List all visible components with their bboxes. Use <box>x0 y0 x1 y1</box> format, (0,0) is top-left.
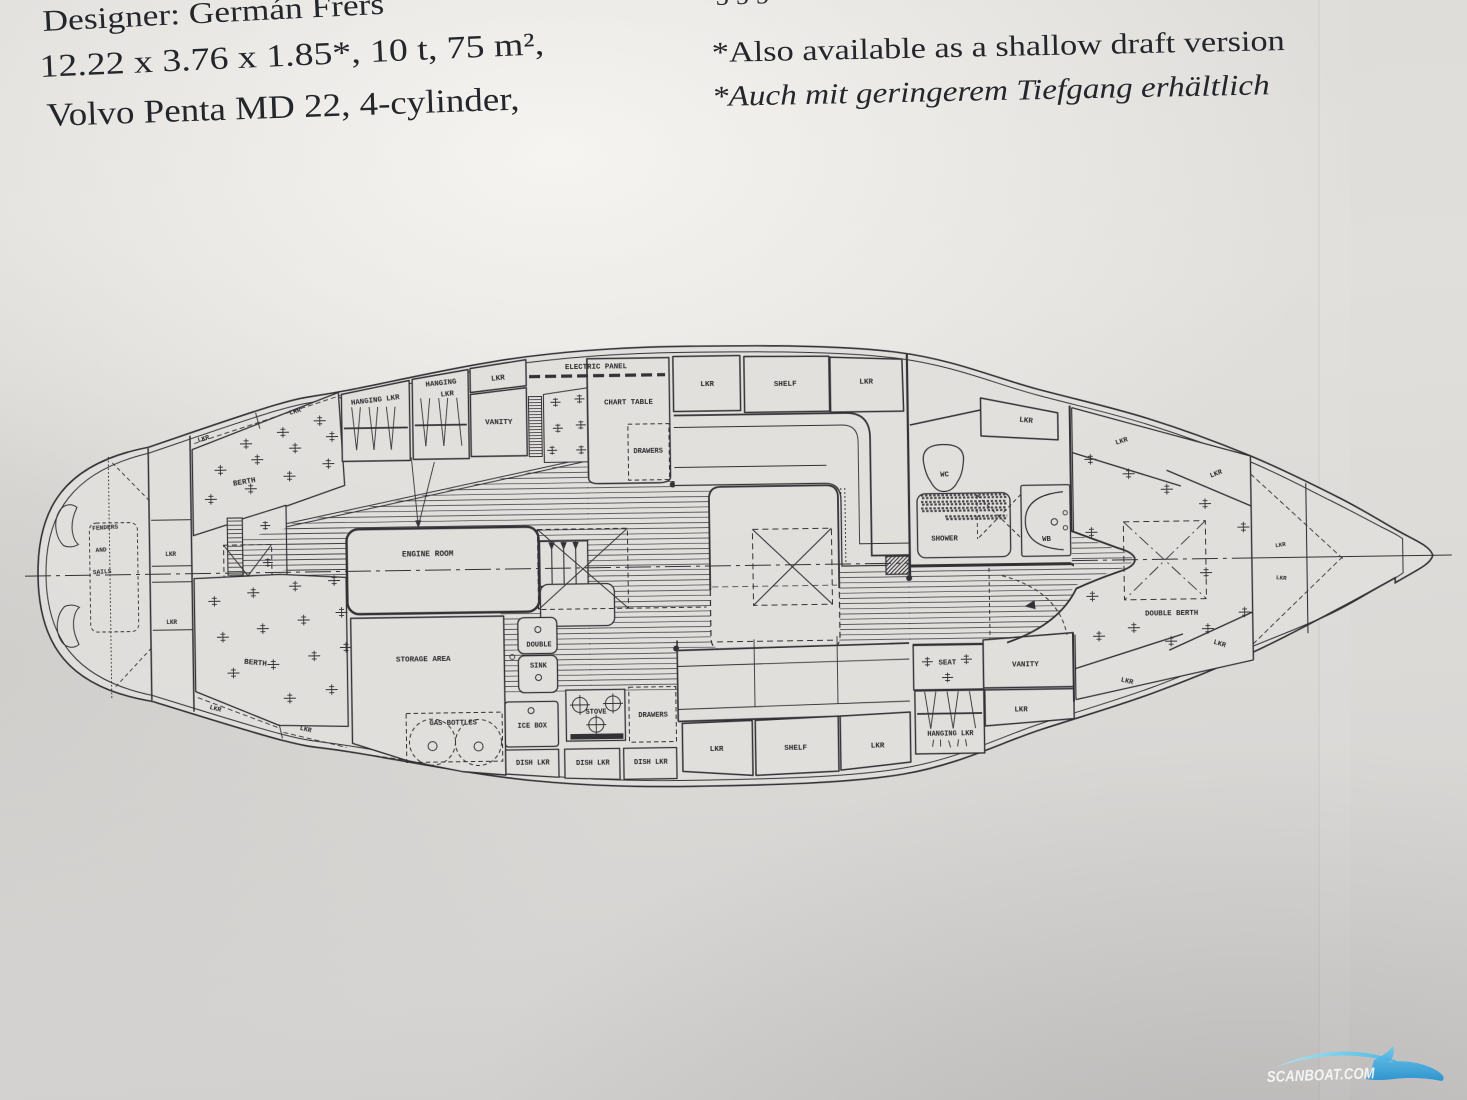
svg-text:VANITY: VANITY <box>1012 661 1039 669</box>
svg-text:LKR: LKR <box>710 746 724 754</box>
svg-text:SHELF: SHELF <box>774 381 797 389</box>
svg-text:355: 355 <box>715 0 776 11</box>
svg-text:Designer: Germán Frers: Designer: Germán Frers <box>42 0 385 38</box>
svg-text:LKR: LKR <box>1014 706 1028 714</box>
svg-text:LKR: LKR <box>859 379 873 387</box>
svg-text:ICE BOX: ICE BOX <box>518 722 548 730</box>
svg-text:STORAGE AREA: STORAGE AREA <box>396 656 451 665</box>
svg-text:AND: AND <box>95 546 107 554</box>
svg-text:*Auch mit geringerem Tiefgang: *Auch mit geringerem Tiefgang erhältlich <box>711 69 1270 113</box>
svg-text:LKR: LKR <box>1019 417 1034 426</box>
svg-text:*Also available as a shallow d: *Also available as a shallow draft versi… <box>711 25 1285 69</box>
svg-text:SHELF: SHELF <box>784 745 807 753</box>
svg-text:DISH LKR: DISH LKR <box>576 759 611 768</box>
svg-text:WC: WC <box>940 471 949 479</box>
svg-text:LKR: LKR <box>440 390 455 399</box>
svg-text:DRAWERS: DRAWERS <box>638 712 668 720</box>
svg-text:LKR: LKR <box>491 374 506 383</box>
svg-text:SEAT: SEAT <box>938 659 956 667</box>
svg-text:LKR: LKR <box>166 619 177 626</box>
svg-text:ENGINE ROOM: ENGINE ROOM <box>402 551 454 560</box>
svg-text:LKR: LKR <box>871 742 885 750</box>
svg-text:WB: WB <box>1042 536 1051 544</box>
svg-text:LKR: LKR <box>700 381 714 389</box>
svg-text:LKR: LKR <box>165 551 176 558</box>
svg-text:DISH LKR: DISH LKR <box>634 759 669 768</box>
svg-text:SINK: SINK <box>530 662 548 670</box>
svg-text:DRAWERS: DRAWERS <box>633 448 663 456</box>
svg-text:CHART TABLE: CHART TABLE <box>604 399 653 408</box>
svg-text:DOUBLE BERTH: DOUBLE BERTH <box>1145 610 1198 619</box>
svg-text:HANGING LKR: HANGING LKR <box>927 730 974 739</box>
svg-text:DOUBLE: DOUBLE <box>526 641 551 649</box>
svg-text:SCANBOAT.COM: SCANBOAT.COM <box>1267 1065 1376 1086</box>
svg-text:Volvo Penta MD 22, 4-cylinder,: Volvo Penta MD 22, 4-cylinder, <box>46 82 520 134</box>
svg-text:LKR: LKR <box>1276 574 1288 582</box>
svg-text:VANITY: VANITY <box>485 419 513 427</box>
svg-text:SHOWER: SHOWER <box>931 535 958 543</box>
svg-text:ELECTRIC PANEL: ELECTRIC PANEL <box>565 363 628 372</box>
svg-text:DISH LKR: DISH LKR <box>516 759 551 768</box>
svg-text:STOVE: STOVE <box>586 709 607 717</box>
